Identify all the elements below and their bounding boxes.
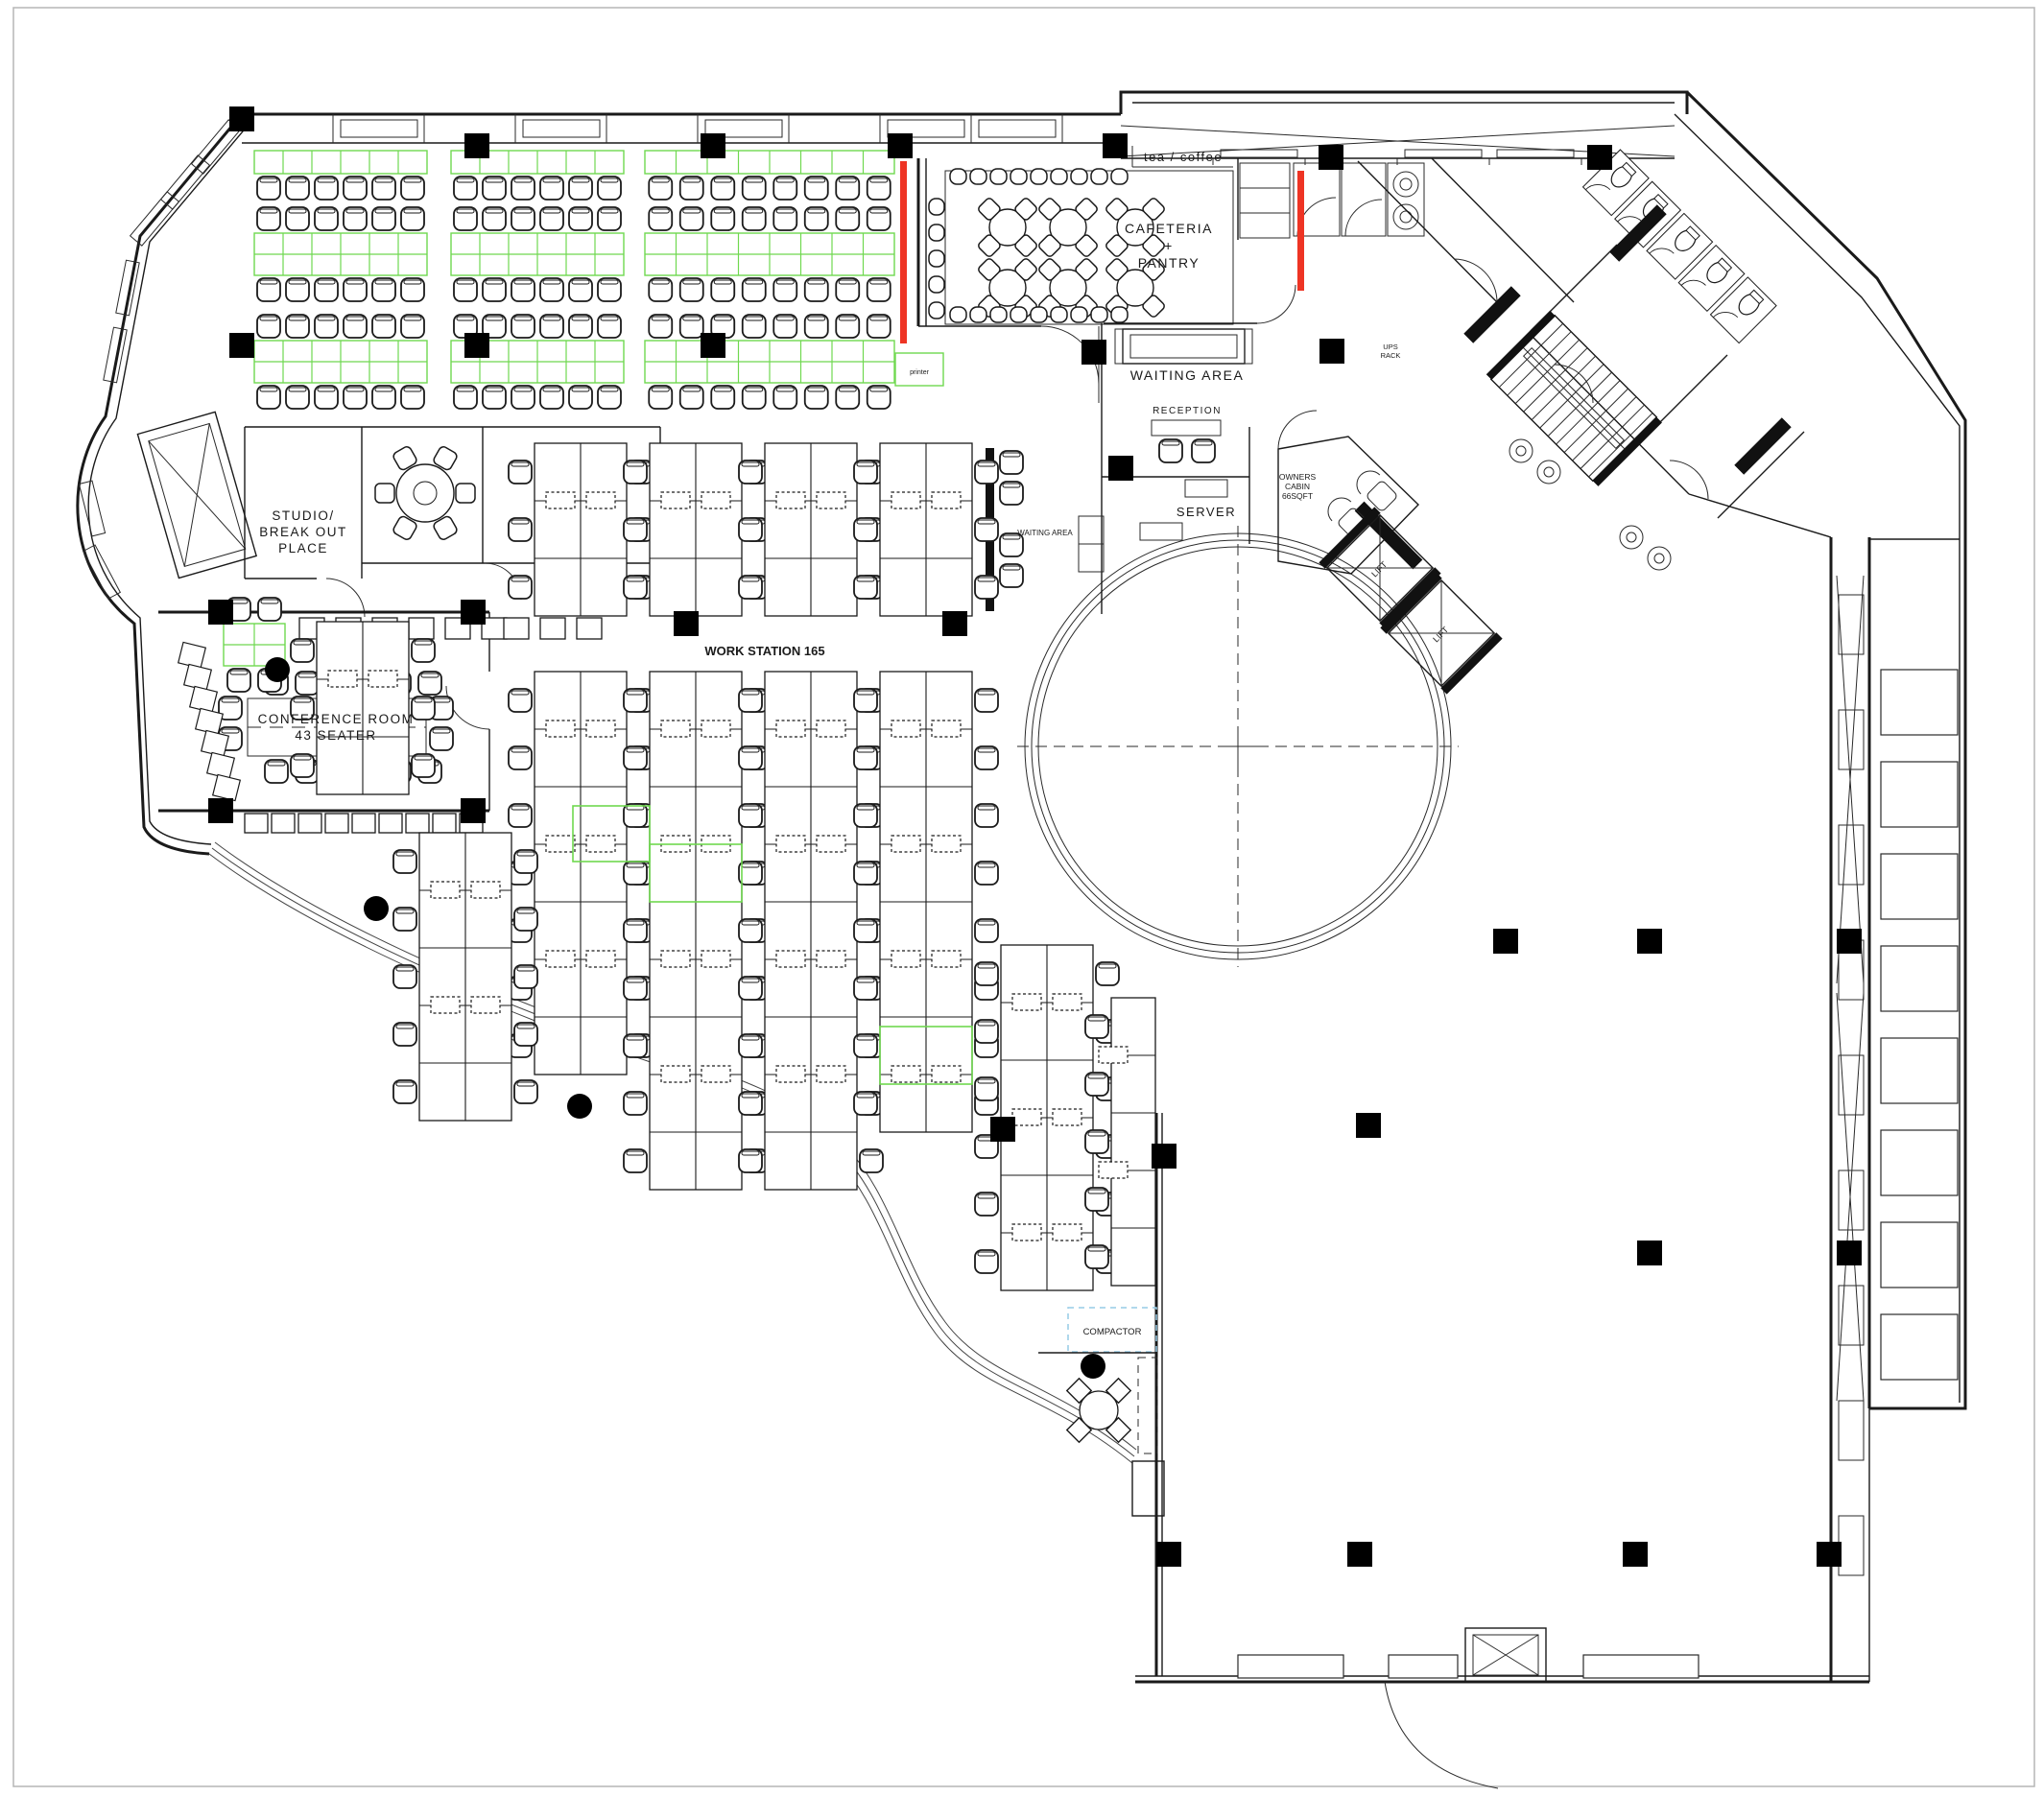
cafeteria (918, 146, 1424, 403)
label-compactor: COMPACTOR (1083, 1327, 1142, 1337)
label-lift-1: LIFT (1369, 559, 1390, 579)
left-lift (137, 412, 256, 578)
svg-text:66SQFT: 66SQFT (1282, 491, 1313, 501)
floor-plan-sheet: tea / coffee CAFETERIA + PANTRY WAITING … (0, 0, 2044, 1796)
label-waiting-small: WAITING AREA (1017, 529, 1073, 537)
atrium-circle (1017, 526, 1459, 967)
svg-text:OWNERS: OWNERS (1279, 472, 1317, 482)
label-server: SERVER (1176, 505, 1236, 519)
toilet-stalls (1583, 150, 1777, 343)
svg-text:CONFERENCE ROOM: CONFERENCE ROOM (258, 712, 415, 726)
label-ups-rack: UPS RACK (1381, 343, 1401, 360)
reception (1152, 420, 1221, 462)
svg-text:CAFETERIA: CAFETERIA (1125, 221, 1213, 236)
svg-text:CABIN: CABIN (1285, 482, 1310, 491)
svg-text:43 SEATER: 43 SEATER (295, 728, 376, 743)
svg-text:RACK: RACK (1381, 351, 1401, 360)
top-window-mullions (333, 114, 1062, 143)
staircase (1486, 311, 1662, 486)
right-facade-band (1238, 576, 1958, 1788)
label-studio: STUDIO/ BREAK OUT PLACE (259, 508, 347, 555)
kitchen-sink-unit (1388, 163, 1424, 236)
label-printer: printer (910, 369, 930, 376)
entry-vestibule (1385, 1628, 1546, 1788)
label-waiting-area: WAITING AREA (1130, 367, 1245, 383)
svg-text:STUDIO/: STUDIO/ (272, 508, 334, 523)
service-core (1358, 150, 1831, 570)
label-owners-cabin: OWNERS CABIN 66SQFT (1279, 472, 1317, 501)
svg-text:PLACE: PLACE (278, 541, 328, 555)
svg-text:UPS: UPS (1383, 343, 1397, 351)
label-lift-2: LIFT (1431, 625, 1451, 645)
workstations-vertical (291, 443, 1155, 1290)
svg-text:+: + (1164, 238, 1174, 253)
svg-text:BREAK OUT: BREAK OUT (259, 525, 347, 539)
left-window-boxes (79, 120, 240, 599)
label-tea-coffee: tea / coffee (1144, 150, 1223, 164)
label-work-station: WORK STATION 165 (704, 644, 824, 658)
svg-text:PANTRY: PANTRY (1138, 255, 1200, 271)
label-reception: RECEPTION (1153, 406, 1222, 416)
floor-plan-drawing: tea / coffee CAFETERIA + PANTRY WAITING … (0, 0, 2044, 1796)
